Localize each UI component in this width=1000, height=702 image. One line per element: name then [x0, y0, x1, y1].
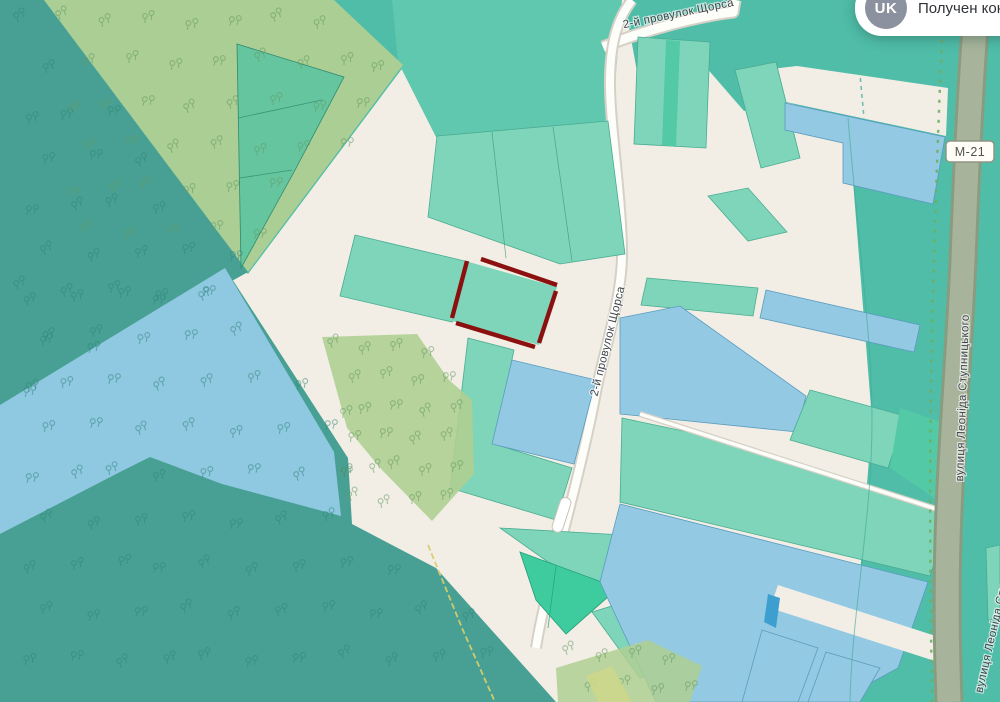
map-canvas[interactable]: 2-й провулок Щорса 2-й провулок Щорса ву… [0, 0, 1000, 702]
tree-icon [561, 640, 575, 655]
parcel-polygon[interactable] [428, 121, 625, 264]
avatar: UK [865, 0, 907, 29]
cadastral-map[interactable]: 2-й провулок Щорса 2-й провулок Щорса ву… [0, 0, 1000, 702]
toast-message: Получен кон [918, 0, 1000, 17]
highway-badge-label: М-21 [955, 145, 985, 159]
parcel-polygon[interactable] [708, 188, 787, 241]
parcel-polygon[interactable] [340, 235, 469, 322]
highway-badge: М-21 [946, 141, 994, 162]
tree-icon [377, 494, 390, 508]
notification-toast[interactable]: UK Получен кон [855, 0, 1000, 36]
landuse-polygon [392, 0, 622, 137]
parcel-blue-polygon[interactable] [620, 306, 806, 432]
